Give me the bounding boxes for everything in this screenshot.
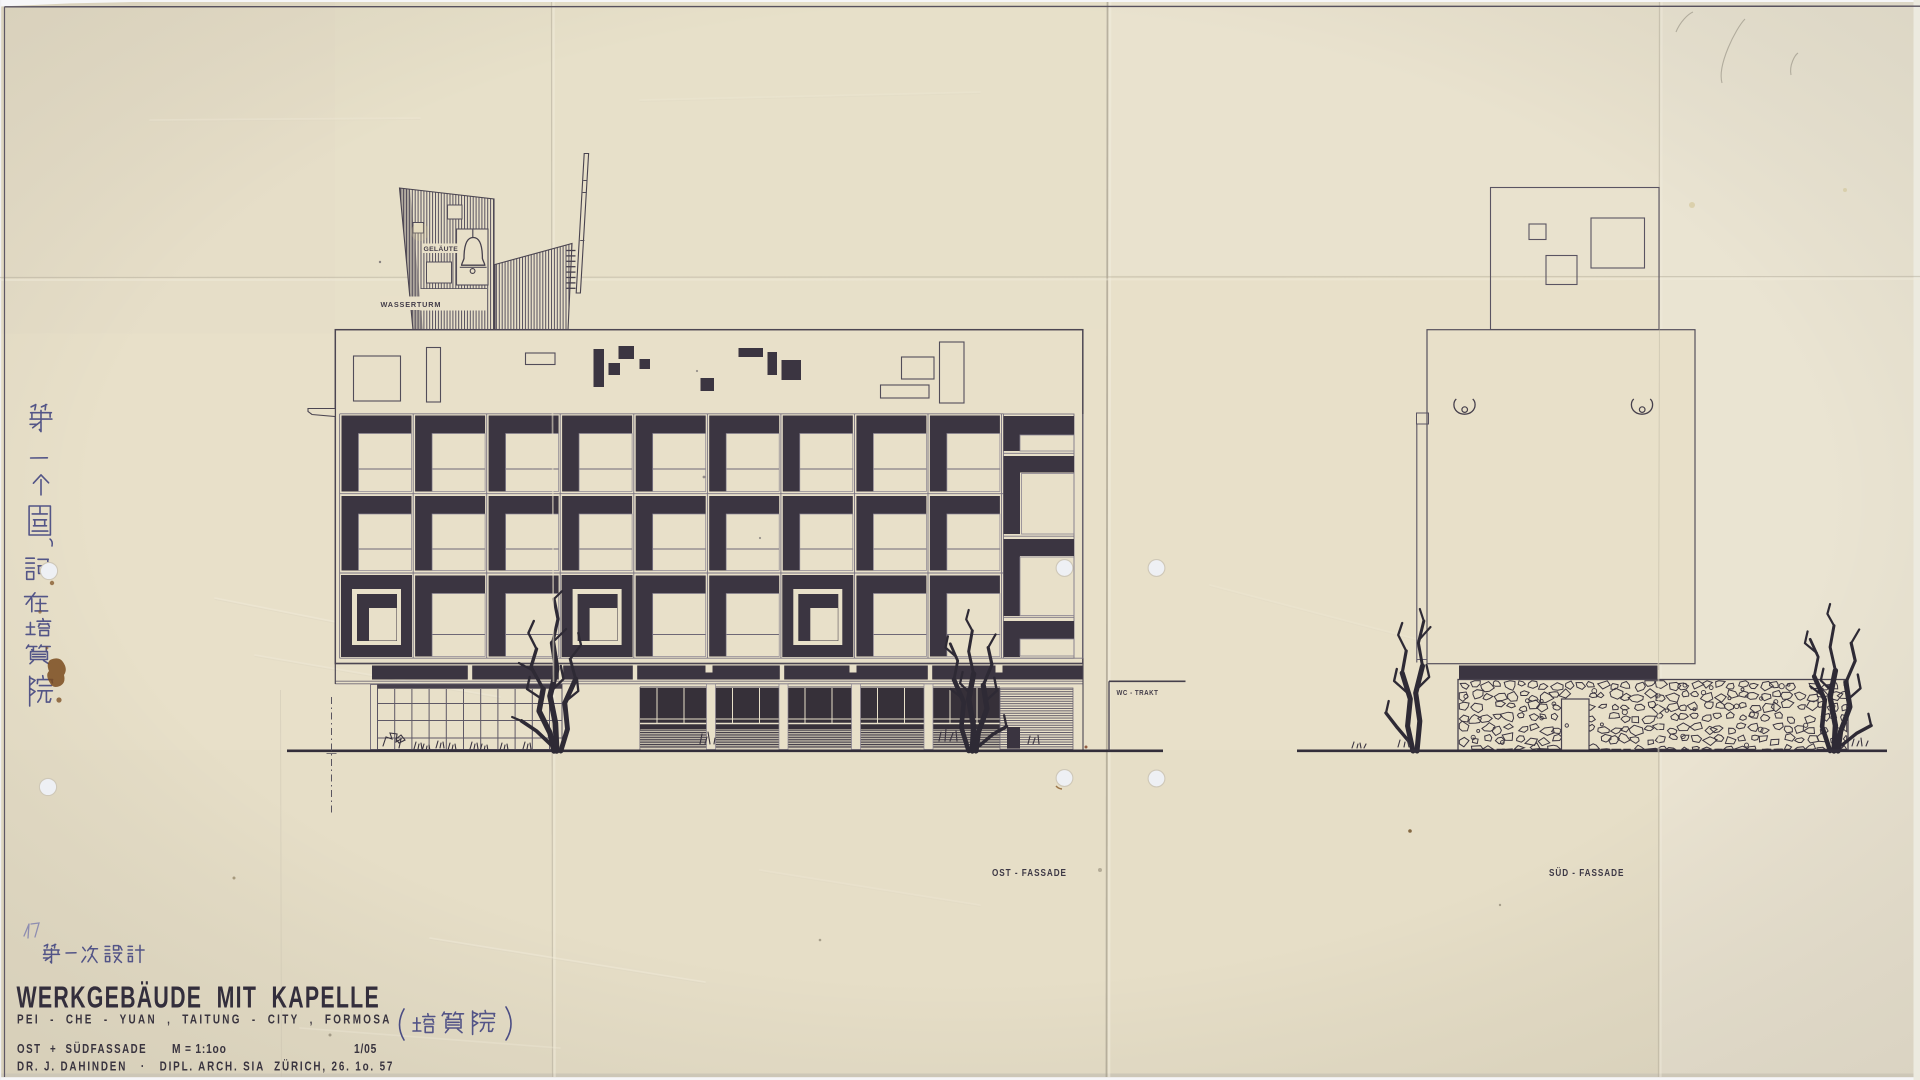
svg-text:WERKGEBÄUDE MIT KAPELLE: WERKGEBÄUDE MIT KAPELLE [17,980,380,1015]
svg-text:OST + SÜDFASSADE: OST + SÜDFASSADE [17,1042,147,1057]
svg-text:WASSERTURM: WASSERTURM [381,300,442,309]
svg-text:PEI - CHE - YUAN , TAITU: PEI - CHE - YUAN , TAITUNG - CITY , FORM… [17,1012,392,1027]
svg-text:OST - FASSADE: OST - FASSADE [992,867,1067,878]
svg-text:SÜD - FASSADE: SÜD - FASSADE [1549,867,1624,878]
svg-text:WC - TRAKT: WC - TRAKT [1117,689,1159,697]
svg-text:1/05: 1/05 [354,1043,377,1056]
svg-text:DR. J. DAHINDEN · DIPL. AR: DR. J. DAHINDEN · DIPL. ARCH. SIA ZÜRICH… [17,1059,394,1074]
svg-text:M = 1:1oo: M = 1:1oo [172,1043,227,1056]
svg-text:GELÄUTE: GELÄUTE [424,245,459,253]
